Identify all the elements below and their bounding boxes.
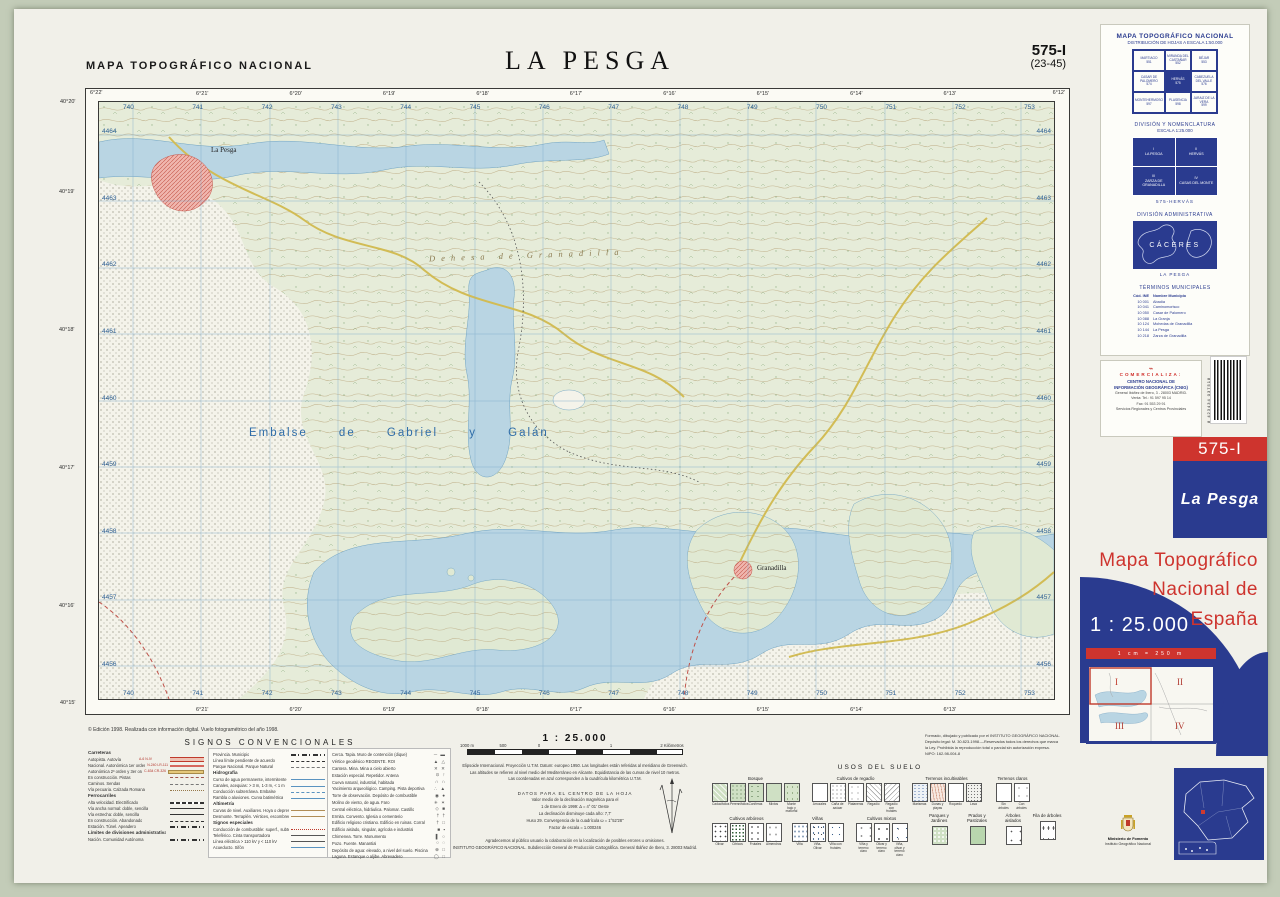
land-use-swatch: Regadío <box>866 783 881 814</box>
land-use-swatch <box>1040 821 1055 840</box>
legend-row: Laguna. Estanque o aljibe. Abrevadero◯ □ <box>332 854 446 861</box>
sheet-cell: CABEZUELA DEL VALLE576 <box>1191 71 1217 92</box>
sheet-cell: BÉJAR553 <box>1191 50 1217 71</box>
quadrant-cell: IIIZARZA DE GRANADILLA <box>1133 167 1175 195</box>
ministry-block: Ministerio de FomentoInstituto Geográfic… <box>1096 814 1160 847</box>
land-use-swatch: Arrozales <box>812 783 827 814</box>
quadrant-cell: ILA PESGA <box>1133 138 1175 166</box>
spain-map <box>1174 768 1264 860</box>
land-use-swatch: Mixtos <box>766 783 781 814</box>
ign-name: Instituto Geográfico Nacional <box>1105 842 1151 846</box>
easting-labels-bottom: 7407417427437447457467477487497507517527… <box>123 690 1035 697</box>
land-use-swatch: Dunas y playas <box>930 783 945 810</box>
land-use-swatch: Olivar <box>712 823 727 850</box>
legend-row: Ermita. Convento. Iglesia o cementerio† … <box>332 813 446 820</box>
quadrant-caption: 575-HERVÁS <box>1101 199 1249 204</box>
cover-sheet-number: 575-I <box>1173 437 1267 461</box>
land-use-group-regadio: Cultivos de regadío ArrozalesCaña de azú… <box>812 776 899 814</box>
land-use-swatch: Olivar y terreno claro <box>874 823 889 857</box>
quadrant-cell: IVCASAS DEL MONTE <box>1176 167 1218 195</box>
land-use-swatch: Monte bajo y matorral <box>784 783 799 814</box>
legend-row: Carreteras <box>88 750 204 757</box>
land-use-group-prados: Prados y Pastizales <box>960 814 994 845</box>
land-use-group-claros: Terrenos claros Sin árbolesCon árboles <box>996 776 1029 810</box>
corner-lon-left: 6°22' <box>90 90 102 96</box>
legend-row: Altimetría <box>213 801 325 808</box>
sheet-index-panel: MAPA TOPOGRÁFICO NACIONAL DISTRIBUCIÓN D… <box>1100 24 1250 356</box>
land-use-swatch: Cítricos <box>730 823 745 850</box>
cover-index-thumbnail: I II III IV <box>1086 664 1216 744</box>
topographic-map-art <box>99 102 1054 699</box>
longitude-ticks-bottom: 6°21'6°20'6°19'6°18'6°17'6°16'6°15'6°14'… <box>196 707 956 713</box>
sheet-cell: MARTIAGO551 <box>1133 50 1165 71</box>
legend-title: SIGNOS CONVENCIONALES <box>120 738 420 747</box>
legend-row: Yacimiento arqueológico. Camping. Pista … <box>332 786 446 793</box>
land-use-swatch: Sin árboles <box>996 783 1011 810</box>
sheet-distribution-grid: MARTIAGO551 MIRANDA DEL CASTAÑAR552 BÉJA… <box>1132 49 1218 114</box>
publisher-note: Formado, dibujado y publicado por el INS… <box>925 733 1067 757</box>
caceres-outline: CÁCERES <box>1133 221 1217 269</box>
admin-division-map: CÁCERES <box>1133 221 1217 269</box>
land-use-swatch: Perennifolios <box>730 783 745 814</box>
sheet-number: 575-I <box>980 42 1066 59</box>
land-use-title: USOS DEL SUELO <box>760 764 1000 771</box>
land-use-swatch: Viña, olivar y terreno claro <box>892 823 907 857</box>
sheet-cell: MONTEHERMOSO597 <box>1133 92 1165 113</box>
index-panel-title: MAPA TOPOGRÁFICO NACIONAL <box>1101 33 1249 40</box>
land-use-group-incultivables: Terrenos incultivables MarismasDunas y p… <box>912 776 981 810</box>
canary-inset <box>1179 842 1216 854</box>
barcode-stripes <box>1211 357 1246 423</box>
land-use-swatch: Plataneras <box>848 783 863 814</box>
land-use-swatch <box>970 826 985 845</box>
latitude-ticks-left: 40°19'40°18'40°17'40°16' <box>59 189 75 609</box>
spain-coat-of-arms <box>1120 814 1136 832</box>
sheet-title: LA PESGA <box>440 46 740 76</box>
sheet-cell: CASAR DE PALOMERO574 <box>1133 71 1165 92</box>
sheet-cell: JARAIZ DE LA VERA599 <box>1191 92 1217 113</box>
label-reservoir: Embalse de Gabriel y Galán <box>249 427 549 439</box>
land-use-swatch: Lava <box>966 783 981 810</box>
svg-text:CÁCERES: CÁCERES <box>1149 240 1200 249</box>
legend-row: Signos especiales <box>213 820 325 827</box>
land-use-swatch: Viña-Olivar <box>810 823 825 850</box>
map-frame: 6°22' 6°12' 40°20' 40°15' 6°21'6°20'6°19… <box>85 88 1070 715</box>
corner-lat-top: 40°20' <box>60 99 76 105</box>
legend-row: Acueducto. Sifón <box>213 845 325 851</box>
admin-title: DIVISIÓN ADMINISTRATIVA <box>1101 212 1249 218</box>
quad-i: I <box>1115 677 1118 687</box>
legend-col-roads: Carreteras Autopista. AutovíaA-6 N-IV Na… <box>88 750 204 843</box>
legend-row: Hidrografía <box>213 770 325 777</box>
land-use-swatch: Roquedo <box>948 783 963 810</box>
legend-row: Estación especial. Repetidor. Antena⊙ ↑ <box>332 772 446 779</box>
land-use-group-mixtos: Cultivos mixtos Viña y terreno claroOliv… <box>856 816 907 857</box>
cover-scale-bar: 1 cm = 250 m <box>1086 648 1216 659</box>
corner-lat-bottom: 40°15' <box>60 700 76 706</box>
sheet-subnumber: (23-45) <box>980 58 1066 70</box>
corner-lon-right: 6°12' <box>1053 90 1065 96</box>
nomenclature-subtitle: ESCALA 1:25.000 <box>1101 128 1249 133</box>
legend-row: Cerca. Tapia. Muro de contención (dique)… <box>332 752 446 759</box>
municipios-table: Cód. INENombre Municipio 10 001Abadía10 … <box>1125 294 1225 340</box>
ministry-name: Ministerio de Fomento <box>1108 837 1149 841</box>
quad-ii: II <box>1177 677 1183 687</box>
legend-row: Torre de observación. Depósito de combus… <box>332 793 446 800</box>
legend-row: Edificio religioso cristiano. Edificio e… <box>332 820 446 827</box>
index-panel-subtitle: DISTRIBUCIÓN DE HOJAS A ESCALA 1:50.000 <box>1101 40 1249 45</box>
legend-row: Depósito de agua: elevado, a nivel del s… <box>332 847 446 854</box>
land-use-swatch: Frutales <box>748 823 763 850</box>
land-use-group-aislados: Árboles aislados <box>998 814 1028 845</box>
land-use-swatch: Almendros <box>766 823 781 850</box>
northing-labels-left: 446444634462446144604459445844574456 <box>102 128 116 668</box>
land-use-swatch: Viña y terreno claro <box>856 823 871 857</box>
comercializa-label: COMERCIALIZA: <box>1101 372 1201 379</box>
quadrant-grid: ILA PESGA IIHERVÁS IIIZARZA DE GRANADILL… <box>1132 137 1218 196</box>
sheet-cell: MIRANDA DEL CASTAÑAR552 <box>1165 50 1191 71</box>
land-use-group-fila: Fila de árboles <box>1032 814 1062 840</box>
land-use-swatch: Con árboles <box>1014 783 1029 810</box>
series-title: MAPA TOPOGRÁFICO NACIONAL <box>86 60 313 72</box>
land-use-swatch <box>932 826 947 845</box>
land-use-group-bosque: Bosque CaducifoliosPerennifoliosConífera… <box>712 776 799 814</box>
land-use-swatch: Caña de azúcar <box>830 783 845 814</box>
sheet-cell: PLASENCIA598 <box>1165 92 1191 113</box>
legend-row: Cueva natural, industrial, habitada∩ ∩ <box>332 779 446 786</box>
land-use-swatch: Coníferas <box>748 783 763 814</box>
map-canvas: 7407417427437447457467477487497507517527… <box>98 101 1055 700</box>
cover-sheet-name: La Pesga <box>1173 461 1267 538</box>
legend-row: Pozo. Fuente. Manantial○ ◌ <box>332 840 446 847</box>
barcode-number: 8 423434 037518 <box>1206 357 1211 423</box>
quad-iii: III <box>1115 721 1124 731</box>
land-use-swatch: Regadío con frutales <box>884 783 899 814</box>
land-use-swatch: Caducifolios <box>712 783 727 814</box>
longitude-ticks-top: 6°21'6°20'6°19'6°18'6°17'6°16'6°15'6°14'… <box>196 91 956 97</box>
quadrant-cell: IIHERVÁS <box>1176 138 1218 166</box>
legend-row: Central eléctrica, hidráulica. Palomar. … <box>332 806 446 813</box>
municipio-row: 10 218Zarza de Granadilla <box>1125 334 1225 340</box>
quad-iv: IV <box>1175 721 1185 731</box>
legend-row: Edificio aislado, singular, agrícola e i… <box>332 827 446 834</box>
cnig-services: Servicios Regionales y Centros Provincia… <box>1101 407 1201 412</box>
legend-row: Chimenea. Torre. Monumento▌ ○ <box>332 834 446 841</box>
land-use-swatch <box>1006 826 1021 845</box>
distributor-panel: ⌁ COMERCIALIZA: CENTRO NACIONAL DE INFOR… <box>1100 360 1202 437</box>
thumbnail-art: I II III IV <box>1089 667 1213 741</box>
legend-row: Cantera. Mina. Mina a cielo abierto✕ ✕ <box>332 766 446 773</box>
municipios-title: TÉRMINOS MUNICIPALES <box>1101 285 1249 291</box>
label-town-granadilla: Granadilla <box>757 564 787 572</box>
scale-bar: 1000 m 500 0 1 2 Kilómetros <box>467 749 683 755</box>
land-use-group-arboreos: Cultivos arbóreos OlivarCítricosFrutales… <box>712 816 781 850</box>
cover-scale: 1 : 25.000 <box>1090 614 1189 637</box>
edition-note: © Edición 1998. Realizada con informació… <box>88 727 279 733</box>
municipios-rows: 10 001Abadía10 041Caminomorisco10 050Cas… <box>1125 300 1225 340</box>
label-town-la-pesga: La Pesga <box>211 146 236 154</box>
legend-row: Vértice geodésico REGENTE. ROI▲ △ <box>332 759 446 766</box>
sheet-cell-current: HERVÁS575 <box>1165 71 1191 92</box>
land-use-swatch: Viña <box>792 823 807 850</box>
spain-locator-box <box>1174 768 1264 860</box>
legend-row: Ferrocarriles <box>88 793 204 800</box>
land-use-group-parques: Parques y Jardines <box>922 814 956 845</box>
easting-labels-top: 7407417427437447457467477487497507517527… <box>123 104 1035 111</box>
admin-caption: LA PESGA <box>1101 272 1249 277</box>
land-use-swatch: Marismas <box>912 783 927 810</box>
land-use-swatch: Viña con frutales <box>828 823 843 850</box>
legend-col-hydro: Provincia. Municipio Línea límite pendie… <box>208 748 330 858</box>
sheet-location-marker <box>1201 810 1205 814</box>
land-use-group-vinas: Viñas ViñaViña-OlivarViña con frutales <box>792 816 843 850</box>
barcode: 8 423434 037518 <box>1206 357 1246 423</box>
legend-col-symbols: Cerca. Tapia. Muro de contención (dique)… <box>327 748 451 858</box>
acknowledgement: Agradecemos al público usuario la colabo… <box>450 838 700 852</box>
legend-row: Límites de divisiones administrativas <box>88 830 204 837</box>
legend-row: Nación. Comunidad Autónoma <box>88 837 204 843</box>
declination-diagram <box>655 775 689 837</box>
legend-row: Molino de viento, de agua. Faro✳ ✶ <box>332 800 446 807</box>
